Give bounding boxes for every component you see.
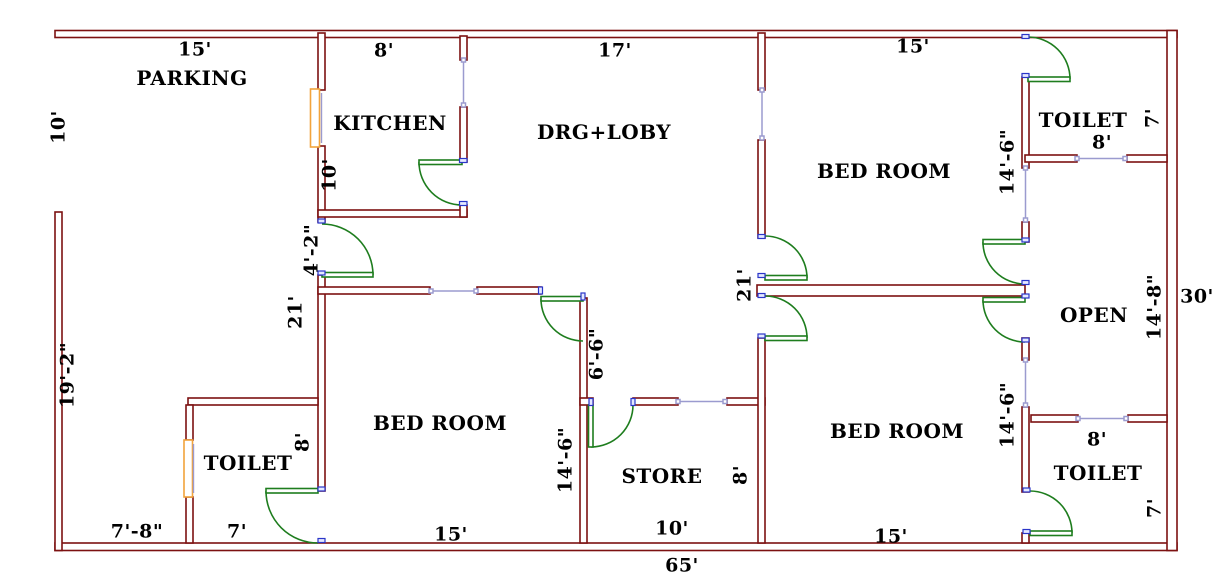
room-label-bedroom-tr: BED ROOM [817,161,951,181]
dim-kitchen-height: 10' [321,158,340,192]
dim-parking-width: 15' [178,41,212,60]
dim-lobby-width: 17' [598,42,632,61]
wall-kitchen-right-a [460,36,467,60]
wall-lobby-bedroom-a [758,33,765,90]
window-kitchen-left [311,89,320,147]
door-leaf-bedroom-bl [541,297,583,302]
wall-bottom [55,543,1177,551]
wall-parking-kitchen-c [318,275,325,491]
room-label-toilet-bl: TOILET [204,453,293,473]
room-label-drg-loby: DRG+LOBY [537,122,671,142]
door-arc-bedroom-tr-east [983,242,1025,284]
wall-top [55,31,1177,38]
dim-kitchen-width: 8' [374,42,394,61]
wall-toilet-bl-top [188,398,318,405]
door-arc-toilet-br [1030,491,1072,533]
dim-toilet-br-width: 8' [1087,431,1107,450]
room-label-bedroom-bl: BED ROOM [373,413,507,433]
door-arc-kitchen [419,162,462,205]
dim-left-wall: 19'-2" [59,342,78,408]
dim-toilet-bl-width: 7' [227,523,247,542]
wall-middle-left-a [318,287,430,294]
dim-total-width: 65' [665,557,699,576]
wall-toilet-bl-left-a [186,405,193,440]
wall-kitchen-bottom [318,210,467,217]
wall-toilet-tr-bottom-b [1127,155,1167,162]
dim-lobby-door: 4'-2" [303,224,322,277]
dim-bedroom-bl-height: 14'-6" [557,427,576,493]
wall-store-top-b [633,398,678,405]
dim-store-width: 10' [655,520,689,539]
door-leaf-toilet-br [1030,531,1072,536]
dim-toilet-tr-height: 7' [1144,108,1163,128]
dim-open-height: 14'-8" [1146,274,1165,340]
dim-parking-entry: 10' [50,110,69,144]
dim-yard-width: 7'-8" [111,523,164,542]
dim-total-height: 30' [1180,288,1214,307]
room-label-toilet-br: TOILET [1054,463,1143,483]
door-leaf-bedroom-tr-east [983,240,1025,245]
dim-left-mid-wall: 21' [287,295,306,329]
door-leaf-bedroom-tr-west [765,276,807,281]
wall-toilet-tr-bottom-a [1025,155,1077,162]
door-arc-bedroom-bl [541,299,583,341]
wall-toilet-br-top-b [1128,415,1167,422]
door-leaf-bedroom-br-east [983,298,1025,303]
door-arc-bedroom-br-east [983,300,1025,342]
door-leaf-toilet-tr [1028,77,1070,82]
wall-middle-right [757,285,1025,296]
door-leaf-bedroom-br-west [765,336,807,341]
door-leaf-toilet-bl [266,489,318,494]
dim-bedroom-tr-width: 15' [896,38,930,57]
dim-toilet-tr-width: 8' [1092,134,1112,153]
room-label-parking: PARKING [136,68,247,88]
door-arc-toilet-tr [1028,37,1070,79]
wall-middle-left-b [477,287,541,294]
door-leaf-store [589,405,594,447]
dim-toilet-br-height: 7' [1146,498,1165,518]
door-arc-toilet-bl [266,491,318,543]
window-toilet-bl-left [184,440,193,497]
room-label-toilet-tr: TOILET [1039,110,1128,130]
door-arc-store [591,405,633,447]
wall-bedroom-open-d [1022,407,1029,492]
wall-kitchen-right-c [460,205,467,217]
dim-bedroom-br-width: 15' [874,528,908,547]
door-arc-bedroom-br-west [765,296,807,338]
room-label-bedroom-br: BED ROOM [830,421,964,441]
wall-right [1167,31,1177,551]
wall-bedroom-open-e [1022,533,1029,543]
wall-parking-kitchen-a [318,33,325,90]
door-arc-lobby-entry [322,224,373,275]
floor-plan: PARKING KITCHEN DRG+LOBY BED ROOM TOILET… [0,0,1219,584]
dim-bedroom-bl-width: 15' [434,526,468,545]
dim-bedroom-br-height: 14'-6" [999,382,1018,448]
dim-toilet-bl-height: 8' [294,432,313,452]
dim-bedroom-tr-height: 14'-6" [999,129,1018,195]
wall-kitchen-right-b [460,107,467,162]
room-label-open: OPEN [1060,305,1128,325]
wall-toilet-br-top-a [1031,415,1078,422]
dim-store-height: 8' [732,465,751,485]
dim-corridor-height: 6'-6" [588,328,607,381]
wall-toilet-bl-left-b [186,497,193,543]
room-label-store: STORE [621,466,702,486]
door-leaf-kitchen [419,160,462,165]
door-arc-bedroom-tr-west [765,236,807,278]
wall-lobby-bedroom-c [758,338,765,543]
wall-lobby-bedroom-b [758,140,765,238]
door-leaf-lobby-entry [322,273,373,278]
room-label-kitchen: KITCHEN [333,113,446,133]
dim-right-mid-wall: 21' [736,268,755,302]
